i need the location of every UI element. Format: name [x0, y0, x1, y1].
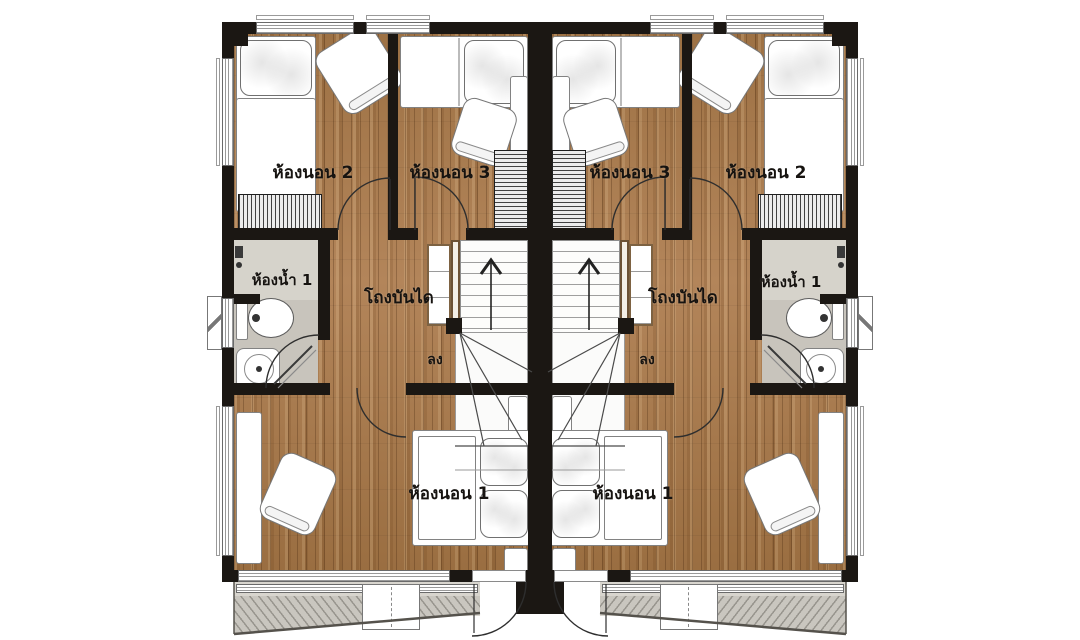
label-stairhall-left: โถงบันได — [339, 284, 459, 311]
window-ledge — [858, 296, 873, 350]
label-bathroom-left: ห้องน้ำ 1 — [222, 268, 342, 292]
window-sill — [860, 406, 864, 556]
door-arc-balcony — [554, 582, 608, 636]
winder-line — [460, 333, 522, 440]
window-ledge — [207, 296, 222, 350]
label-bathroom-right: ห้องน้ำ 1 — [731, 270, 851, 294]
linework-layer — [222, 0, 540, 640]
unit-right — [540, 0, 858, 640]
door-leaf-bathroom-edge — [278, 350, 316, 388]
label-stairhall-right: โถงบันได — [623, 284, 743, 311]
label-bedroom1-right: ห้องนอน 1 — [563, 480, 703, 507]
winder-line — [596, 333, 620, 446]
door-arc-bathroom — [266, 335, 319, 388]
label-bedroom2-right: ห้องนอน 2 — [696, 159, 836, 186]
window-sill — [216, 406, 220, 556]
winder-line — [558, 333, 620, 440]
label-bedroom3-left: ห้องนอน 3 — [380, 159, 520, 186]
label-down-left: ลง — [410, 349, 460, 371]
label-bedroom3-right: ห้องนอน 3 — [560, 159, 700, 186]
door-leaf-bathroom-edge — [764, 350, 802, 388]
balcony-outer-edge — [600, 613, 846, 634]
label-bedroom2-left: ห้องนอน 2 — [243, 159, 383, 186]
unit-left — [222, 0, 540, 640]
window-sill — [216, 58, 220, 166]
door-arc-bedroom1 — [357, 388, 406, 437]
linework-layer — [540, 0, 858, 640]
winder-line — [460, 333, 484, 446]
door-arc-balcony — [472, 582, 526, 636]
door-arc-bathroom — [761, 335, 814, 388]
label-bedroom1-left: ห้องนอน 1 — [379, 480, 519, 507]
window-sill — [860, 58, 864, 166]
balcony-outer-edge — [234, 613, 480, 634]
door-arc-bedroom1 — [674, 388, 723, 437]
floor-plan-canvas: ห้องนอน 2 ห้องนอน 3 ห้องนอน 3 ห้องนอน 2 … — [0, 0, 1080, 640]
label-down-right: ลง — [622, 349, 672, 371]
